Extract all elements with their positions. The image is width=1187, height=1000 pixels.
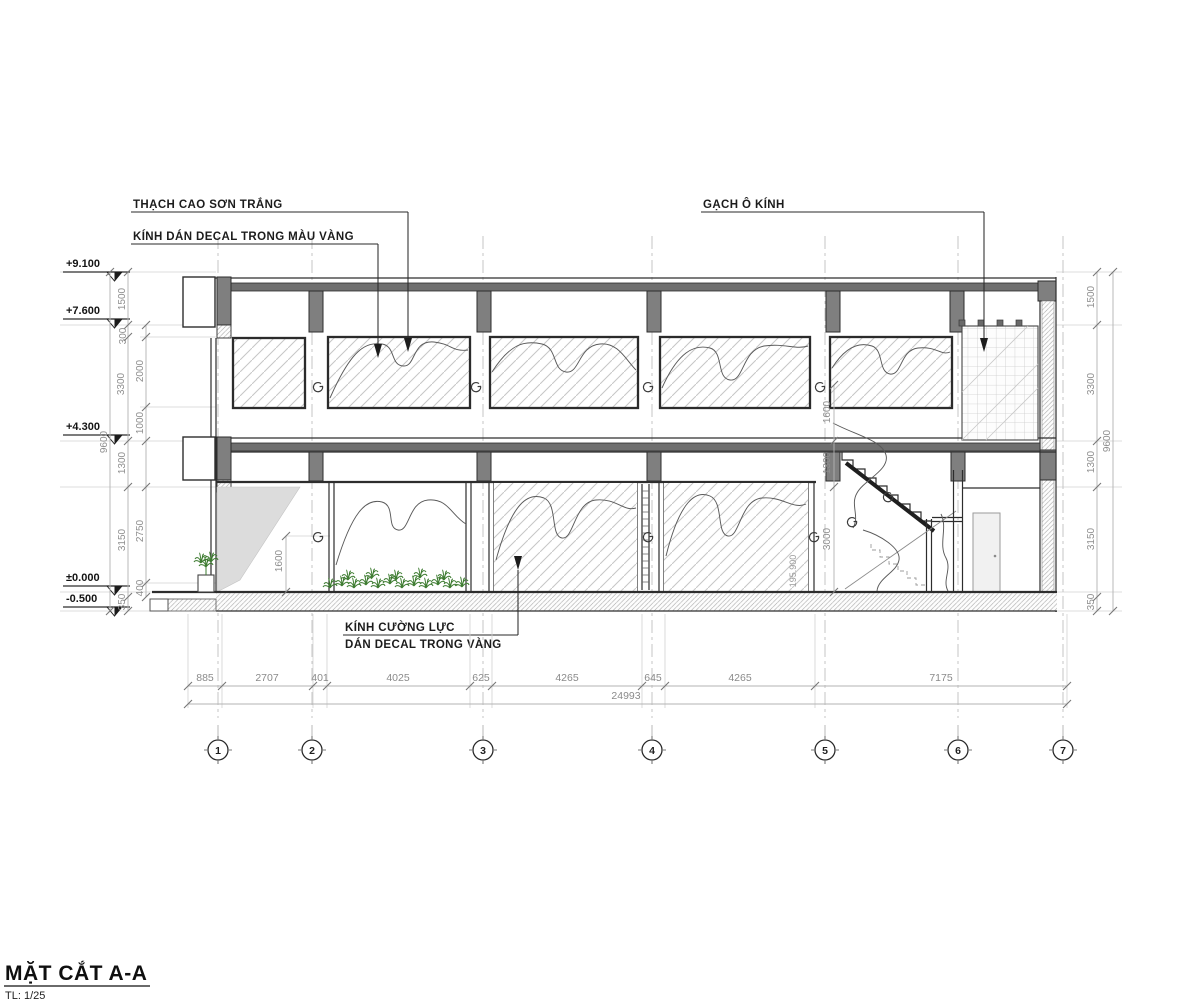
svg-text:9600: 9600 [1102, 429, 1113, 452]
section-drawing: THẠCH CAO SƠN TRẮNG KÍNH DÁN DECAL TRONG… [0, 0, 1187, 1000]
svg-text:4025: 4025 [386, 672, 410, 684]
title-block: MẶT CẮT A-A TL: 1/25 [4, 961, 150, 1000]
svg-text:7: 7 [1060, 745, 1066, 757]
svg-text:1600: 1600 [822, 400, 833, 423]
svg-text:645: 645 [644, 672, 662, 684]
plaster-label: THẠCH CAO SƠN TRẮNG [133, 198, 283, 211]
glass-block-label: GẠCH Ô KÍNH [703, 198, 785, 211]
svg-text:9600: 9600 [99, 430, 110, 453]
potted-plant [194, 552, 218, 592]
svg-text:+4.300: +4.300 [66, 421, 100, 433]
svg-text:3000: 3000 [822, 527, 833, 550]
svg-text:5: 5 [822, 745, 828, 757]
svg-text:1300: 1300 [1086, 450, 1097, 473]
svg-text:3300: 3300 [116, 372, 127, 395]
planter-shrubs [323, 568, 469, 588]
svg-text:1: 1 [215, 745, 221, 757]
svg-text:-0.500: -0.500 [66, 593, 97, 605]
upper-window-1 [233, 338, 305, 408]
svg-text:885: 885 [196, 672, 214, 684]
upper-window-2 [328, 337, 470, 408]
svg-text:625: 625 [472, 672, 490, 684]
tempered-glass-label-line2: DÁN DECAL TRONG VÀNG [345, 638, 502, 651]
svg-text:2: 2 [309, 745, 315, 757]
svg-text:400: 400 [135, 579, 146, 596]
elevation-marker: +4.300 [63, 421, 130, 444]
elevation-marker: +9.100 [63, 258, 130, 281]
upper-window-4 [660, 337, 810, 408]
right-dimensions: 1500 3300 1300 3150 350 9600 [1086, 268, 1117, 615]
svg-text:1500: 1500 [117, 287, 128, 310]
svg-text:2707: 2707 [255, 672, 279, 684]
drawing-title: MẶT CẮT A-A [5, 961, 147, 985]
svg-text:3150: 3150 [1086, 527, 1097, 550]
tempered-glass-label-line1: KÍNH CƯỜNG LỰC [345, 621, 455, 634]
door-handle [994, 555, 997, 558]
grid-bubble-1: 1 [204, 736, 232, 764]
glass-block-wall [959, 320, 1038, 440]
grid-bubble-7: 7 [1049, 736, 1077, 764]
stair-dimensions: 1600 1300 3000 [822, 381, 838, 596]
svg-text:4265: 4265 [728, 672, 752, 684]
shade-wedge [217, 487, 300, 592]
wall-note: 195.900 [788, 555, 798, 588]
upper-windows [233, 337, 952, 408]
right-wall [1040, 277, 1056, 612]
ground-storefront [216, 482, 816, 592]
door [973, 513, 1000, 592]
svg-text:6: 6 [955, 745, 961, 757]
upper-window-5 [830, 337, 952, 408]
svg-text:4: 4 [649, 745, 655, 757]
roof-slab [183, 277, 1056, 338]
svg-text:2750: 2750 [135, 519, 146, 542]
grid-bubble-6: 6 [944, 736, 972, 764]
planter-dimension: 1600 [274, 532, 290, 596]
elevation-markers: +9.100 +7.600 +4.300 ±0.000 -0.500 [63, 258, 130, 616]
svg-text:1300: 1300 [117, 451, 128, 474]
svg-text:1500: 1500 [1086, 285, 1097, 308]
svg-text:350: 350 [1086, 593, 1097, 610]
elevation-marker: ±0.000 [63, 572, 130, 595]
grid-bubble-4: 4 [638, 736, 666, 764]
svg-text:3300: 3300 [1086, 372, 1097, 395]
svg-text:+9.100: +9.100 [66, 258, 100, 270]
svg-text:4265: 4265 [555, 672, 579, 684]
svg-text:2000: 2000 [135, 359, 146, 382]
grid-bubble-3: 3 [469, 736, 497, 764]
glass-panel [664, 483, 808, 592]
svg-text:1600: 1600 [274, 549, 285, 572]
svg-text:1000: 1000 [135, 411, 146, 434]
svg-text:401: 401 [311, 672, 329, 684]
svg-text:300: 300 [118, 327, 129, 344]
svg-text:±0.000: ±0.000 [66, 572, 100, 584]
right-room [954, 470, 1041, 592]
bottom-dimensions: 885 2707 401 4025 625 4265 645 4265 7175… [184, 614, 1071, 708]
upper-window-3 [490, 337, 638, 408]
grid-bubbles: 1 2 3 4 5 6 7 [204, 736, 1077, 764]
svg-text:24993: 24993 [611, 690, 640, 702]
svg-text:3: 3 [480, 745, 486, 757]
grid-bubble-2: 2 [298, 736, 326, 764]
grid-lines [218, 236, 1063, 739]
svg-text:350: 350 [117, 593, 128, 610]
ground-slab [150, 592, 1057, 611]
svg-text:7175: 7175 [929, 672, 953, 684]
annotation-plaster: THẠCH CAO SƠN TRẮNG [131, 198, 412, 352]
svg-text:+7.600: +7.600 [66, 305, 100, 317]
svg-text:3150: 3150 [117, 528, 128, 551]
drawing-scale: TL: 1/25 [5, 990, 45, 1000]
svg-text:1300: 1300 [822, 451, 833, 474]
left-dimensions: 9600 1500 300 3300 1300 3150 350 2000 10… [99, 268, 150, 615]
grid-bubble-5: 5 [811, 736, 839, 764]
annotation-glass-block: GẠCH Ô KÍNH [701, 198, 988, 352]
decal-glass-label: KÍNH DÁN DECAL TRONG MÀU VÀNG [133, 230, 354, 243]
